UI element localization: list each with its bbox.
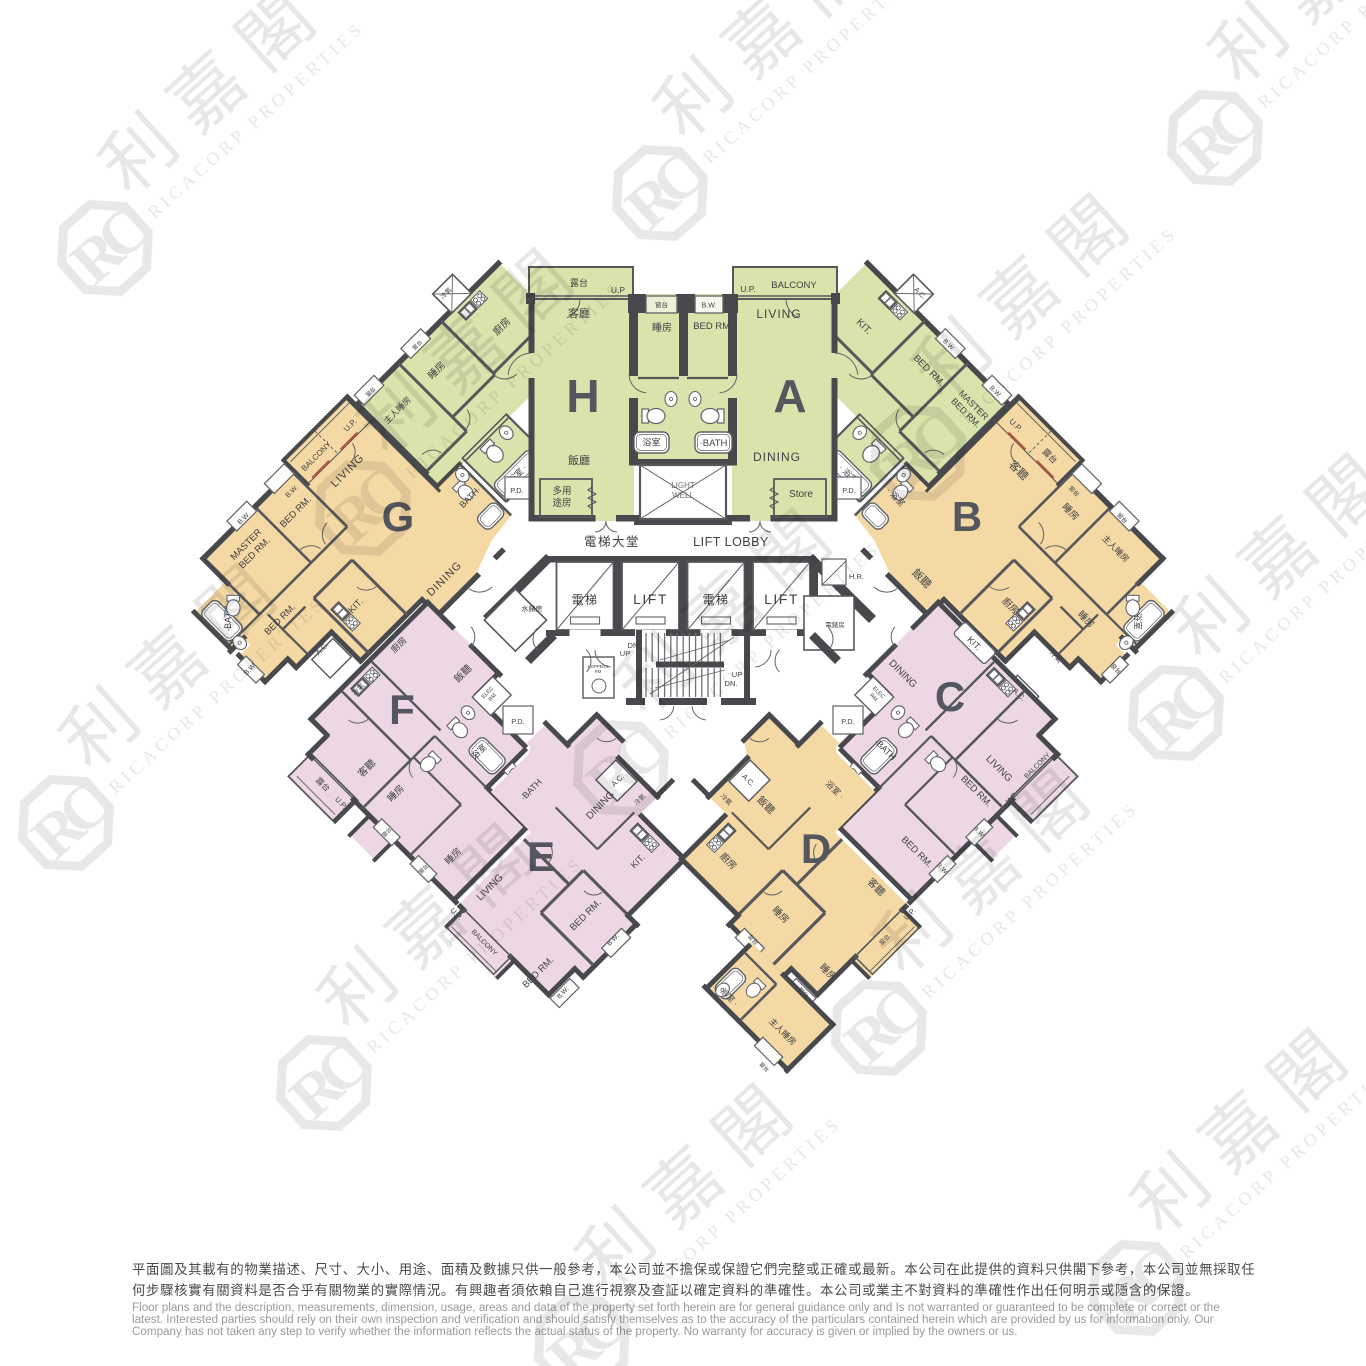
svg-text:P.D.: P.D. bbox=[841, 717, 855, 726]
svg-text:多用: 多用 bbox=[552, 485, 571, 497]
svg-text:P.D.: P.D. bbox=[510, 486, 524, 495]
svg-text:F: F bbox=[389, 686, 415, 733]
svg-text:電梯大堂: 電梯大堂 bbox=[584, 535, 640, 549]
svg-text:窗台: 窗台 bbox=[655, 300, 668, 309]
svg-text:·BATH: ·BATH bbox=[700, 438, 728, 449]
svg-text:LIFT: LIFT bbox=[633, 591, 668, 607]
svg-text:電錶房: 電錶房 bbox=[825, 620, 845, 629]
svg-text:WELL: WELL bbox=[672, 491, 694, 500]
svg-text:C: C bbox=[935, 673, 965, 720]
svg-text:RM: RM bbox=[595, 669, 602, 674]
svg-text:LIGHT: LIGHT bbox=[671, 481, 695, 490]
svg-text:BED RM.: BED RM. bbox=[693, 321, 733, 332]
svg-text:H: H bbox=[566, 370, 599, 422]
svg-text:P.D.: P.D. bbox=[511, 717, 525, 726]
svg-text:LIVING: LIVING bbox=[756, 307, 801, 321]
svg-text:B: B bbox=[952, 493, 982, 540]
svg-text:水錶房: 水錶房 bbox=[522, 604, 543, 613]
svg-text:飯廳: 飯廳 bbox=[568, 453, 590, 467]
svg-text:D: D bbox=[801, 825, 831, 872]
svg-text:電梯: 電梯 bbox=[571, 593, 598, 607]
svg-text:A: A bbox=[773, 370, 806, 422]
svg-text:DINING: DINING bbox=[753, 450, 801, 464]
svg-text:U.P.: U.P. bbox=[740, 284, 755, 294]
svg-text:途房: 途房 bbox=[552, 497, 571, 509]
svg-text:B.W.: B.W. bbox=[702, 303, 717, 310]
svg-text:P.D.: P.D. bbox=[842, 486, 856, 495]
svg-text:浴室: 浴室 bbox=[642, 437, 660, 448]
svg-text:睡房: 睡房 bbox=[652, 321, 672, 334]
svg-text:BALCONY: BALCONY bbox=[771, 280, 817, 291]
